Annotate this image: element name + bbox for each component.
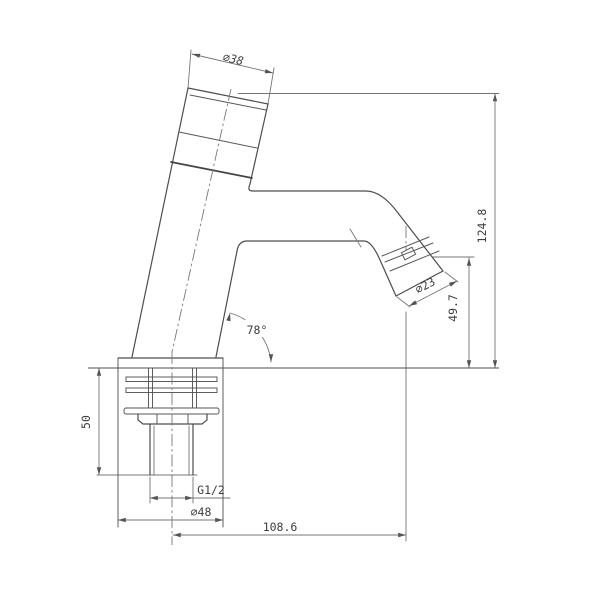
arrow-50-top	[97, 368, 101, 376]
arrow-reach-right	[398, 533, 406, 537]
spout-bottom-edge	[237, 241, 396, 296]
dimension-arrowheads	[97, 54, 497, 538]
dimension-lines	[99, 54, 495, 535]
spout-tip-axis-dash	[350, 229, 361, 247]
arrow-total-height-top	[493, 94, 497, 102]
centerlines	[172, 89, 406, 545]
thread-relief-lines	[154, 426, 189, 475]
label-cap-diameter: ⌀38	[222, 50, 245, 68]
label-outlet-height: 49.7	[446, 294, 460, 322]
aerator-detail-rect	[401, 247, 415, 260]
arrow-base-dia-left	[118, 518, 126, 522]
lock-nut	[138, 414, 207, 424]
arrow-outlet-dia-high	[449, 281, 457, 287]
arrow-base-dia-right	[215, 518, 223, 522]
tap-body	[132, 88, 443, 357]
body-right-edge-upper	[250, 104, 268, 184]
arrow-50-bottom	[97, 467, 101, 475]
arrow-outlet-dia-low	[409, 300, 417, 306]
arrow-reach-left	[173, 533, 181, 537]
label-total-height: 124.8	[475, 209, 489, 244]
aerator-ring-line-2	[385, 243, 433, 262]
lock-nut-facets	[157, 414, 188, 424]
gasket-plate-2	[126, 388, 217, 393]
aerator-ring-line-3	[390, 251, 439, 271]
label-spout-reach: 108.6	[263, 520, 298, 534]
threaded-shank	[150, 424, 193, 475]
arrow-outlet-height-top	[467, 258, 471, 266]
washer-plate	[124, 408, 219, 414]
tap-technical-drawing: ⌀38 124.8 49.7 ⌀23 78° 50 G1/2 ⌀48 108.6	[0, 0, 600, 600]
dimension-labels: ⌀38 124.8 49.7 ⌀23 78° 50 G1/2 ⌀48 108.6	[79, 50, 489, 534]
technical-drawing-page: ⌀38 124.8 49.7 ⌀23 78° 50 G1/2 ⌀48 108.6	[0, 0, 600, 600]
cap-top-edge	[188, 88, 268, 104]
arrow-cap-dia-left	[192, 54, 200, 58]
arrow-thread-left	[150, 496, 158, 500]
ext-outlet-dia-b	[445, 272, 458, 282]
arrow-outlet-height-bottom	[467, 360, 471, 368]
ext-outlet-dia-a	[397, 297, 410, 307]
extension-lines	[97, 50, 499, 541]
label-base-diameter: ⌀48	[191, 505, 212, 519]
arrow-angle-top	[226, 313, 230, 321]
arrow-thread-right	[185, 496, 193, 500]
arrow-angle-bottom	[269, 354, 273, 362]
label-inlet-thread: G1/2	[197, 483, 225, 497]
cap-chamfer-line	[190, 95, 266, 110]
ext-cap-left	[188, 50, 191, 88]
label-body-angle: 78°	[247, 323, 268, 337]
base-assembly	[118, 358, 223, 527]
arrow-cap-dia-right	[265, 69, 273, 73]
aerator-ring-line-1	[382, 237, 429, 256]
body-right-edge-lower	[216, 251, 237, 357]
gasket-plate-1	[126, 377, 217, 382]
label-under-counter-height: 50	[79, 415, 93, 429]
body-axis-centerline	[172, 89, 231, 352]
spout-top-edge	[249, 184, 443, 271]
arrow-total-height-bottom	[493, 360, 497, 368]
